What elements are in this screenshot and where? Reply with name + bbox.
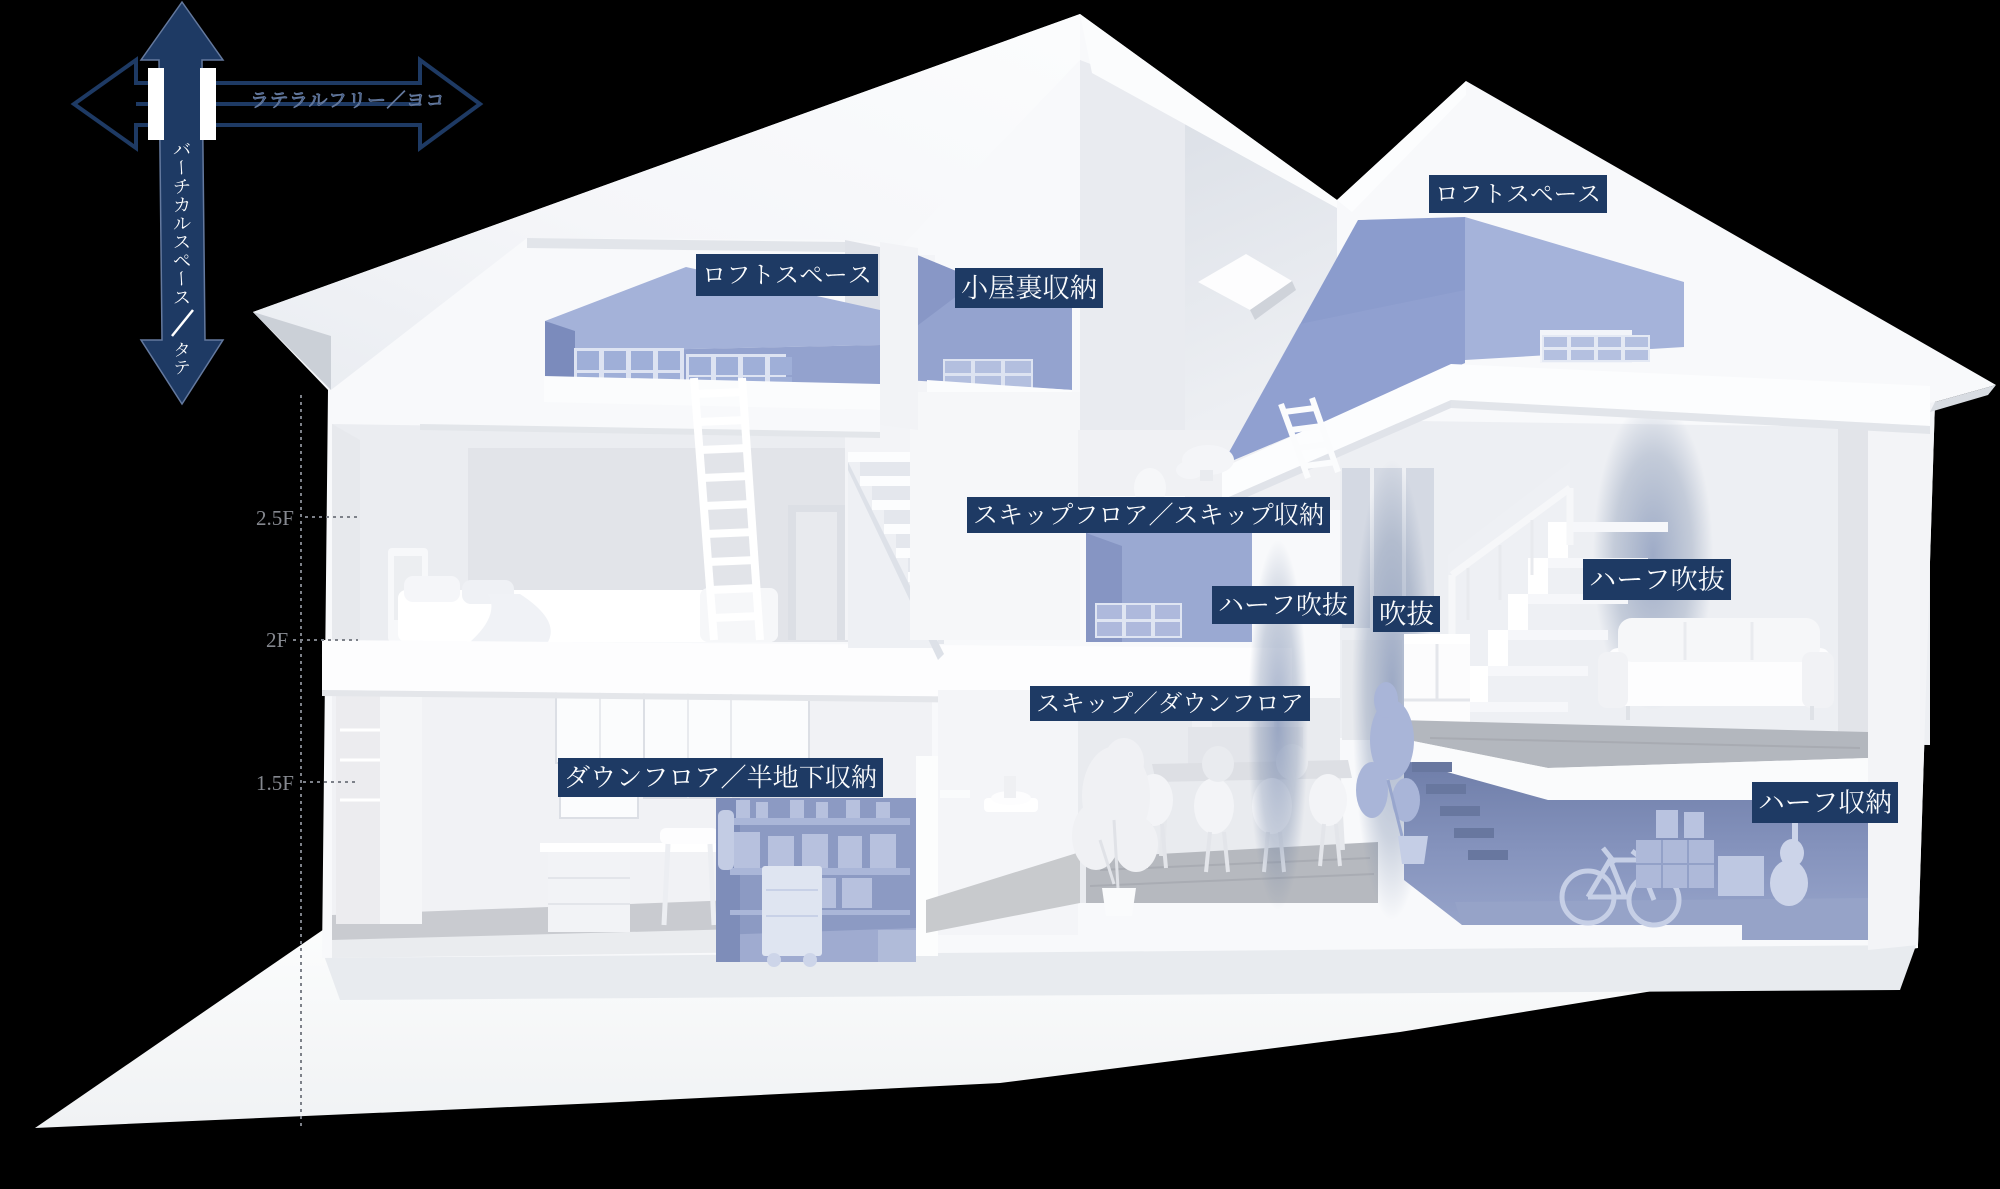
svg-text:2F: 2F: [266, 628, 288, 652]
svg-text:1.5F: 1.5F: [256, 771, 294, 795]
svg-text:2.5F: 2.5F: [256, 506, 294, 530]
